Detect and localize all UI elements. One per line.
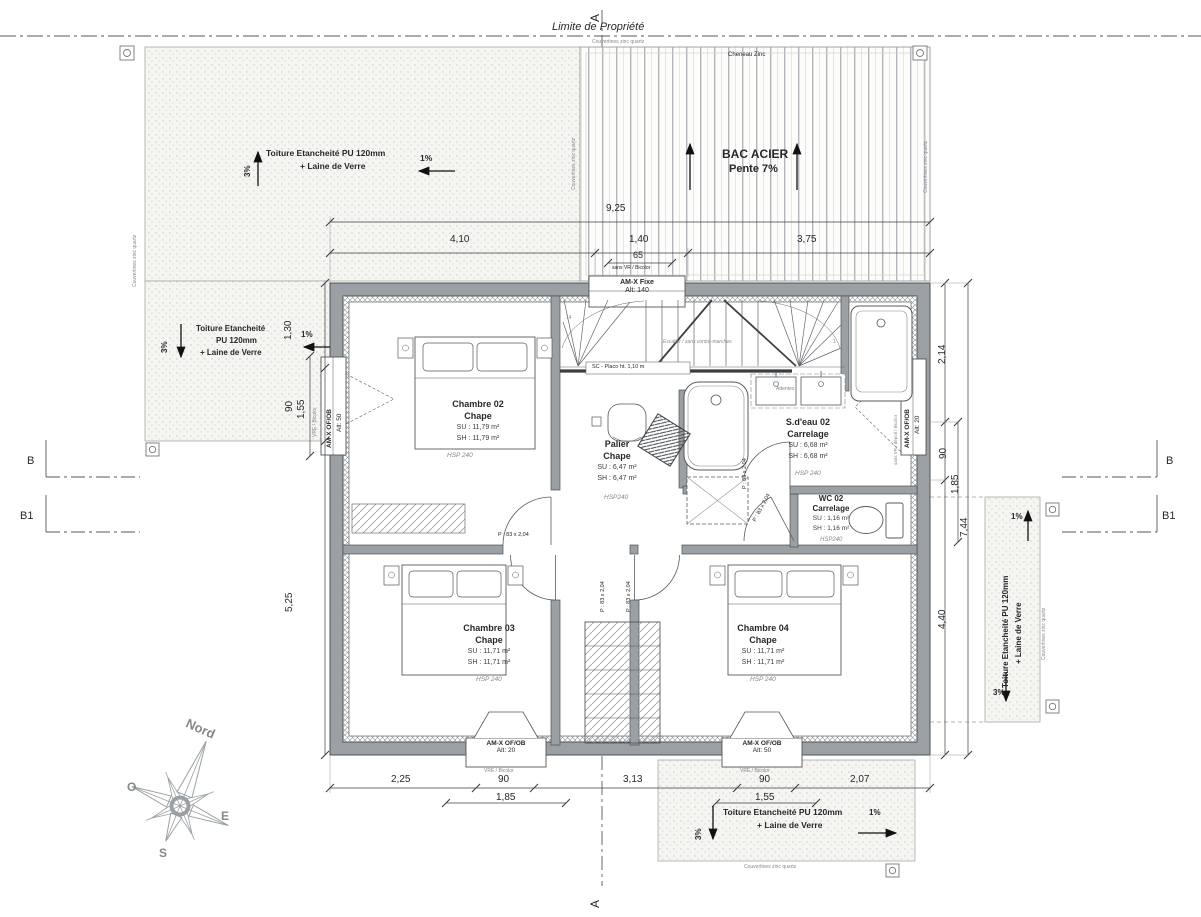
roof-left-slope-cross: 3% bbox=[160, 341, 169, 353]
floor-plan: Limite de Propriété A A B B1 B B1 Couver… bbox=[0, 0, 1201, 917]
window-right-label: AM-X OF/OB bbox=[904, 409, 911, 448]
window-top-glazing-note: sans VR / Bicolor bbox=[612, 266, 650, 272]
dim-bottom-90-right: 90 bbox=[759, 774, 770, 786]
couvertines-label-right-roof: Couvertines zinc quartz bbox=[1042, 608, 1048, 660]
couvertines-label-bottom-roof: Couvertines zinc quartz bbox=[744, 865, 796, 871]
roof-bottom-slope-cross: 3% bbox=[694, 828, 703, 840]
dim-right-90: 90 bbox=[938, 448, 950, 459]
roof-bottom-line1: Toiture Etancheité PU 120mm bbox=[723, 808, 842, 818]
room-hsp-sdeau-02: HSP 240 bbox=[795, 470, 821, 477]
couvertines-label-bac-left: Couvertines zinc quartz bbox=[572, 138, 578, 190]
compass-south-label: S bbox=[159, 847, 167, 861]
roof-left-slope-long: 1% bbox=[301, 330, 313, 339]
dim-top-375: 3,75 bbox=[797, 234, 816, 246]
dim-right-185: 1,85 bbox=[950, 475, 962, 494]
cheneau-label: Cheneau Zinc bbox=[728, 52, 765, 59]
stair-step-number-last: 14 bbox=[566, 316, 572, 322]
property-line-label: Limite de Propriété bbox=[552, 21, 644, 34]
dim-bottom-90-left: 90 bbox=[498, 774, 509, 786]
roof-left-line3: + Laine de Verre bbox=[200, 348, 262, 357]
dim-bottom-155: 1,55 bbox=[755, 792, 774, 804]
window-top-label: AM-X Fixe Alt: 140 bbox=[589, 279, 685, 295]
dim-bottom-225: 2,25 bbox=[391, 774, 410, 786]
section-marker-b1-right: B1 bbox=[1162, 510, 1175, 523]
door-label-chambre-03: P : 83 x 2,04 bbox=[600, 581, 606, 612]
roof-left-line2: PU 120mm bbox=[216, 336, 257, 345]
window-left-label: AM-X OF/OB bbox=[326, 409, 333, 448]
roof-tl-line2: + Laine de Verre bbox=[300, 162, 365, 172]
room-hsp-chambre-04: HSP 240 bbox=[750, 676, 776, 683]
roof-bottom-line2: + Laine de Verre bbox=[757, 821, 822, 831]
dim-bottom-185: 1,85 bbox=[496, 792, 515, 804]
dim-left-90: 90 bbox=[284, 401, 296, 412]
dim-right-440: 4,40 bbox=[937, 610, 949, 629]
stair-guard-label: SC - Placo ht. 1,10 m bbox=[592, 364, 644, 370]
couvertines-label-top: Couvertines zinc quartz bbox=[592, 40, 644, 46]
window-right-glazing-note: sans VR / dépoli / Bicolor bbox=[893, 415, 898, 465]
bac-acier-line1: BAC ACIER bbox=[722, 148, 788, 162]
dim-right-744: 7,44 bbox=[959, 518, 971, 537]
dim-bottom-207: 2,07 bbox=[850, 774, 869, 786]
bac-acier-line2: Pente 7% bbox=[729, 163, 778, 176]
dim-top-140: 1,40 bbox=[629, 234, 648, 246]
section-marker-a-top: A bbox=[589, 14, 603, 22]
door-label-chambre-04: P : 83 x 2,04 bbox=[626, 581, 632, 612]
compass-east-label: E bbox=[221, 810, 229, 824]
roof-tl-slope-cross: 3% bbox=[243, 165, 252, 177]
vanity-attentes-label: Attentes bbox=[776, 387, 794, 393]
roof-tl-line1: Toiture Etancheité PU 120mm bbox=[266, 149, 385, 159]
dim-right-214: 2,14 bbox=[937, 345, 949, 364]
room-label-chambre-04: Chambre 04 Chape SU : 11,71 m² SH : 11,7… bbox=[708, 622, 818, 668]
roof-bottom-slope-long: 1% bbox=[869, 808, 881, 817]
room-label-palier: Palier Chape SU : 6,47 m² SH : 6,47 m² bbox=[562, 438, 672, 484]
dim-left-155: 1,55 bbox=[296, 400, 308, 419]
roof-right-slope-bottom: 3% bbox=[993, 688, 1005, 697]
dim-top-410: 4,10 bbox=[450, 234, 469, 246]
roof-right-line1: Toiture Etancheité PU 120mm bbox=[1001, 576, 1010, 688]
couvertines-label-left: Couvertines zinc quartz bbox=[133, 235, 139, 287]
stair-label: Escalier / sans contre-marches bbox=[663, 340, 732, 346]
roof-tl-slope-long: 1% bbox=[420, 154, 432, 164]
window-bottom-left-label: AM-X OF/OB Alt: 20 bbox=[466, 740, 546, 755]
stair-step-number-first: 1 bbox=[833, 340, 836, 346]
room-hsp-chambre-02: HSP 240 bbox=[447, 452, 473, 459]
compass-west-label: O bbox=[127, 781, 136, 795]
room-label-chambre-03: Chambre 03 Chape SU : 11,71 m² SH : 11,7… bbox=[434, 622, 544, 668]
compass-rose bbox=[118, 722, 255, 861]
roof-left-line1: Toiture Etancheité bbox=[196, 324, 265, 333]
dim-left-525: 5,25 bbox=[284, 593, 296, 612]
section-marker-a-bottom: A bbox=[589, 900, 603, 908]
room-label-sdeau-02: S.d'eau 02 Carrelage SU : 6,68 m² SH : 6… bbox=[753, 416, 863, 462]
door-label-chambre-02: P : 83 x 2,04 bbox=[498, 532, 529, 538]
window-bottom-right-label: AM-X OF/OB Alt: 50 bbox=[722, 740, 802, 755]
room-label-chambre-02: Chambre 02 Chape SU : 11,79 m² SH : 11,7… bbox=[423, 398, 533, 444]
window-left-alt: Alt: 50 bbox=[336, 414, 343, 432]
room-label-wc-02: WC 02 Carrelage SU : 1,16 m² SH : 1,16 m… bbox=[776, 494, 886, 534]
section-marker-b1-left: B1 bbox=[20, 510, 33, 523]
section-marker-b-left: B bbox=[27, 455, 34, 468]
dim-top-925: 9,25 bbox=[606, 203, 625, 215]
room-hsp-chambre-03: HSP 240 bbox=[476, 676, 502, 683]
room-hsp-wc-02: HSP240 bbox=[820, 537, 842, 544]
roof-right-line2: + Laine de Verre bbox=[1014, 602, 1023, 664]
room-hsp-palier: HSP240 bbox=[604, 494, 628, 501]
window-left-glazing-note: VRE / Bicolor bbox=[313, 407, 319, 437]
couvertines-label-bac-right: Couvertines zinc quartz bbox=[924, 141, 930, 193]
dim-top-65: 65 bbox=[633, 250, 643, 260]
stair bbox=[560, 300, 845, 374]
dim-bottom-313: 3,13 bbox=[623, 774, 642, 786]
roof-right-slope-top: 1% bbox=[1011, 512, 1023, 521]
door-label-sdeau-02: P : 83 x 2,04 bbox=[742, 458, 748, 489]
dim-left-130: 1,30 bbox=[283, 321, 295, 340]
window-right-alt: Alt: 20 bbox=[914, 416, 921, 434]
section-marker-b-right: B bbox=[1166, 455, 1173, 468]
